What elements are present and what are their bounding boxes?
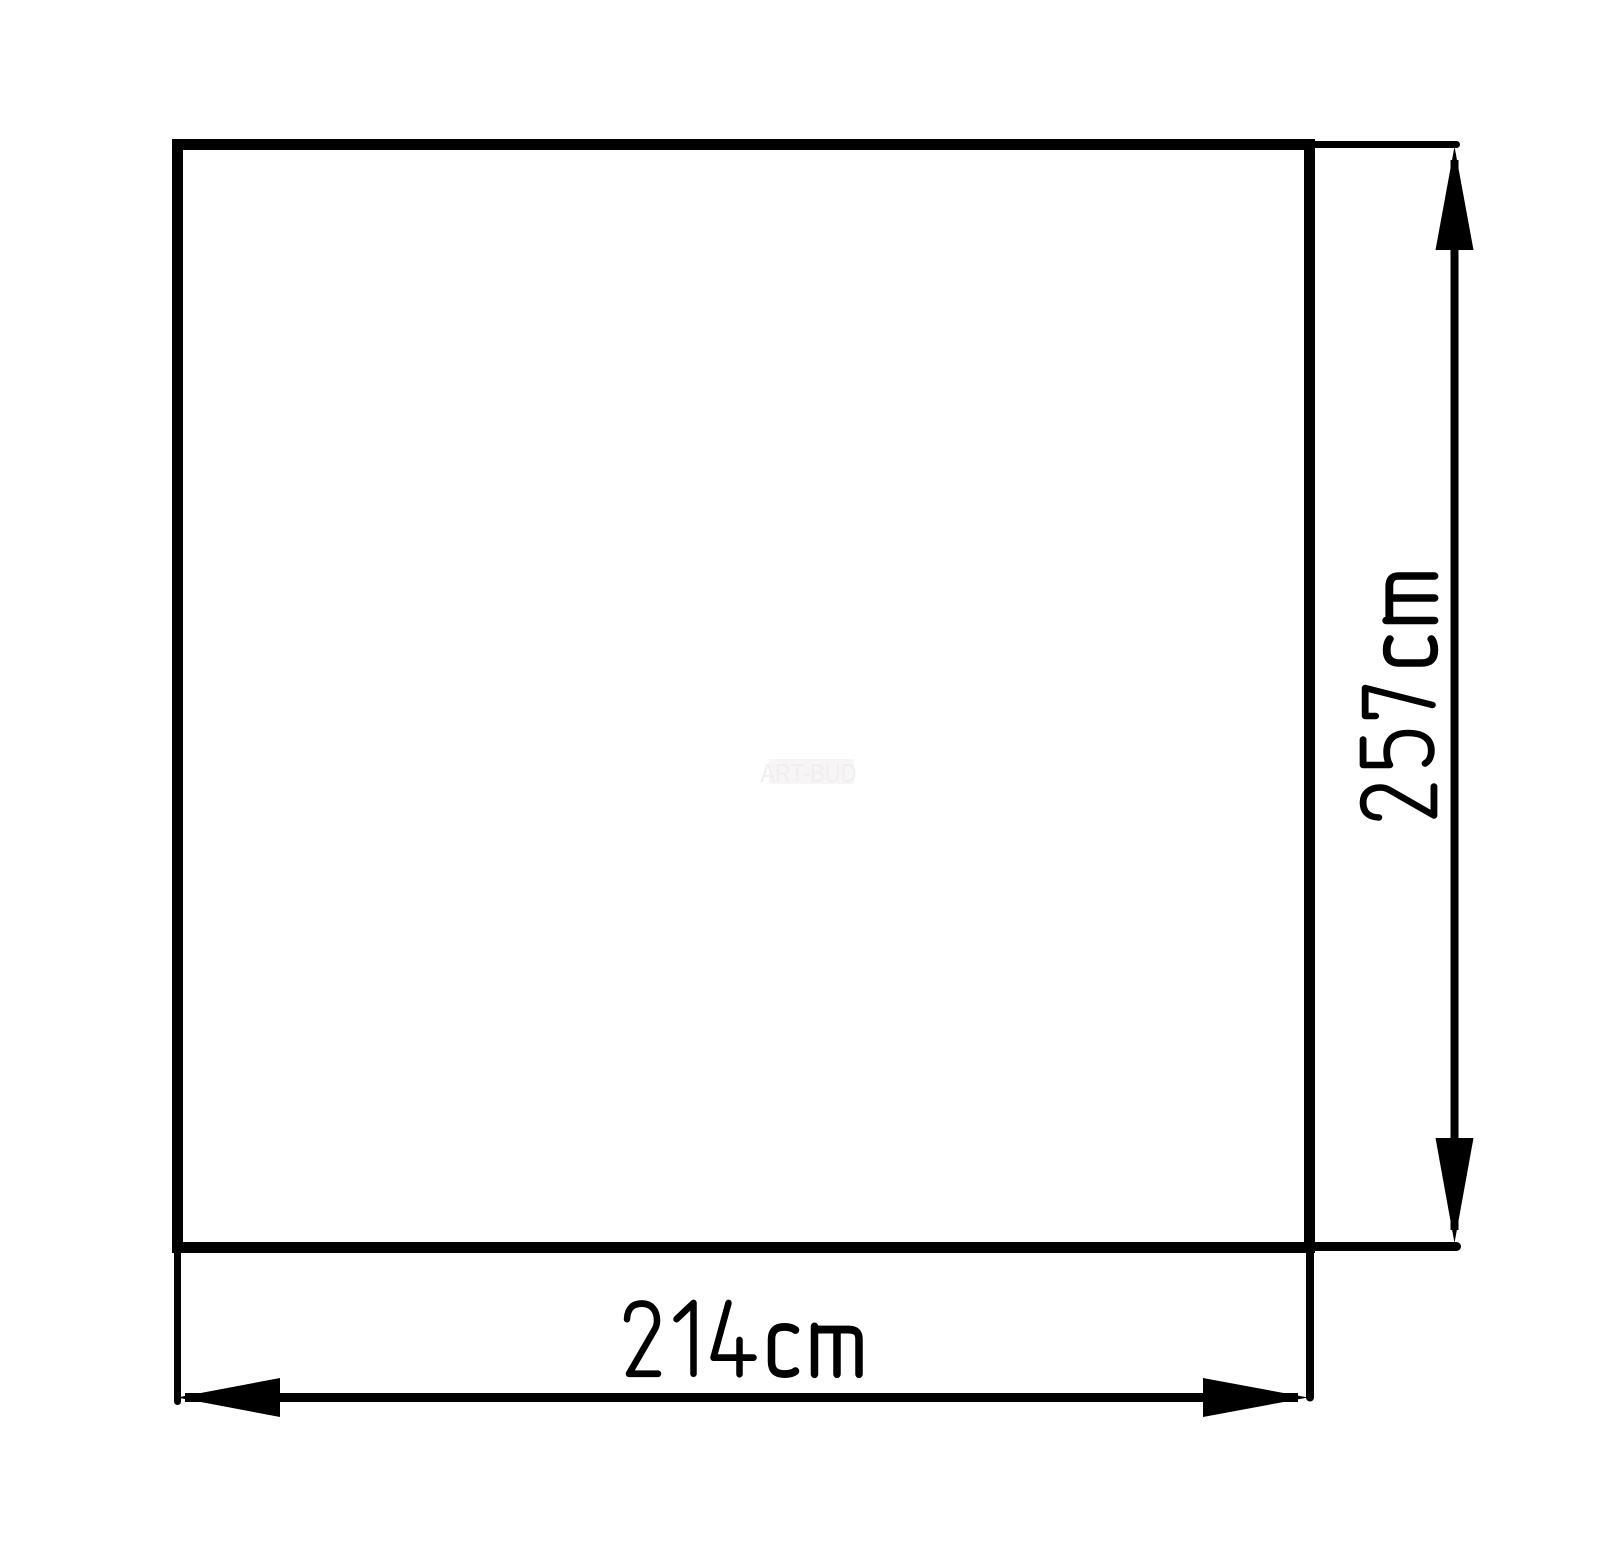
svg-text:ART-BUD: ART-BUD: [761, 758, 857, 788]
